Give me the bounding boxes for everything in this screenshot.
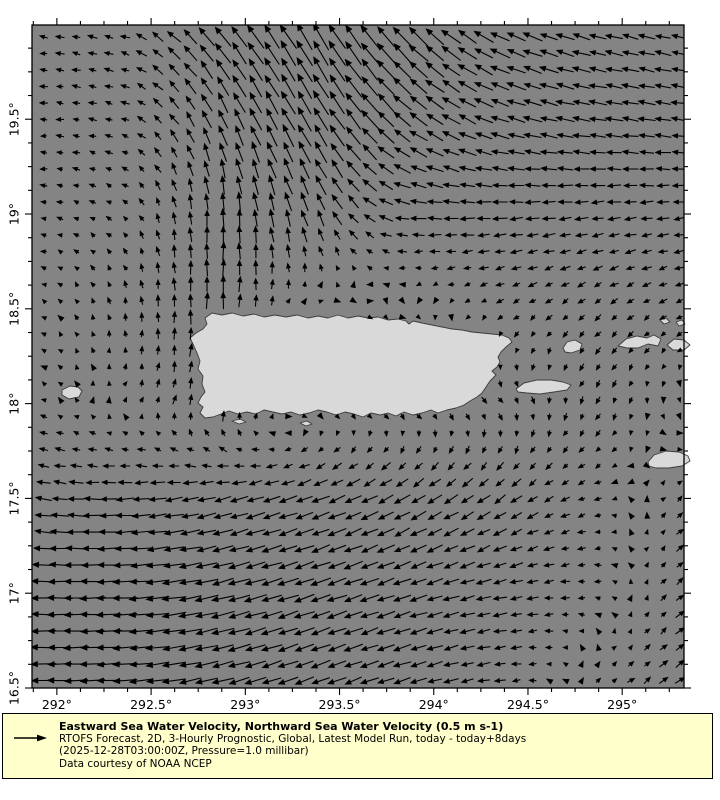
legend-line-model: RTOFS Forecast, 2D, 3-Hourly Prognostic,… [59,733,712,745]
legend-title: Eastward Sea Water Velocity, Northward S… [59,721,712,733]
y-tick-label: 16.5° [7,671,22,705]
quiver-plot: 292°292.5°293°293.5°294°294.5°295°16.5°1… [0,0,720,712]
x-tick-label: 294.5° [507,697,549,712]
x-tick-label: 293.5° [319,697,361,712]
x-tick-label: 295° [607,697,637,712]
legend-line-credit: Data courtesy of NOAA NCEP [59,758,712,770]
sea-water-velocity-map: 292°292.5°293°293.5°294°294.5°295°16.5°1… [0,0,720,800]
y-tick-label: 18.5° [7,292,22,326]
legend-line-time: (2025-12-28T03:00:00Z, Pressure=1.0 mill… [59,745,712,757]
y-tick-label: 17.5° [7,481,22,515]
y-tick-label: 19° [7,203,22,225]
legend-box: Eastward Sea Water Velocity, Northward S… [2,713,713,779]
reference-arrow-icon [3,714,59,748]
y-axis-labels: 16.5°17°17.5°18°18.5°19°19.5° [7,102,22,705]
x-tick-label: 294° [419,697,449,712]
y-tick-label: 18° [7,393,22,415]
y-tick-label: 17° [7,582,22,604]
y-tick-label: 19.5° [7,102,22,136]
x-axis-labels: 292°292.5°293°293.5°294°294.5°295° [42,697,637,712]
x-tick-label: 292.5° [130,697,172,712]
x-tick-label: 292° [42,697,72,712]
x-tick-label: 293° [230,697,260,712]
